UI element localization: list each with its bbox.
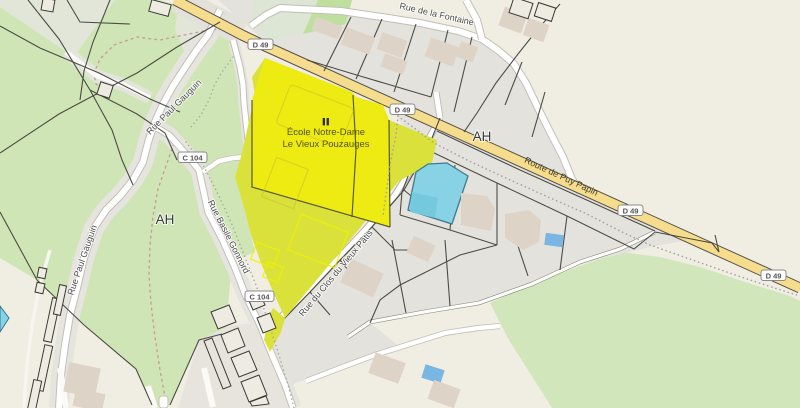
svg-text:D 49: D 49 bbox=[395, 105, 411, 114]
svg-text:D 49: D 49 bbox=[766, 271, 782, 280]
svg-text:AH: AH bbox=[473, 129, 492, 144]
svg-text:AH: AH bbox=[156, 212, 175, 227]
svg-text:C 104: C 104 bbox=[249, 292, 270, 301]
svg-text:Le Vieux Pouzauges: Le Vieux Pouzauges bbox=[283, 139, 370, 150]
svg-text:D 49: D 49 bbox=[623, 206, 639, 215]
svg-text:D 49: D 49 bbox=[253, 40, 269, 49]
svg-text:C 104: C 104 bbox=[182, 153, 203, 162]
svg-text:École Notre-Dame: École Notre-Dame bbox=[287, 127, 365, 138]
